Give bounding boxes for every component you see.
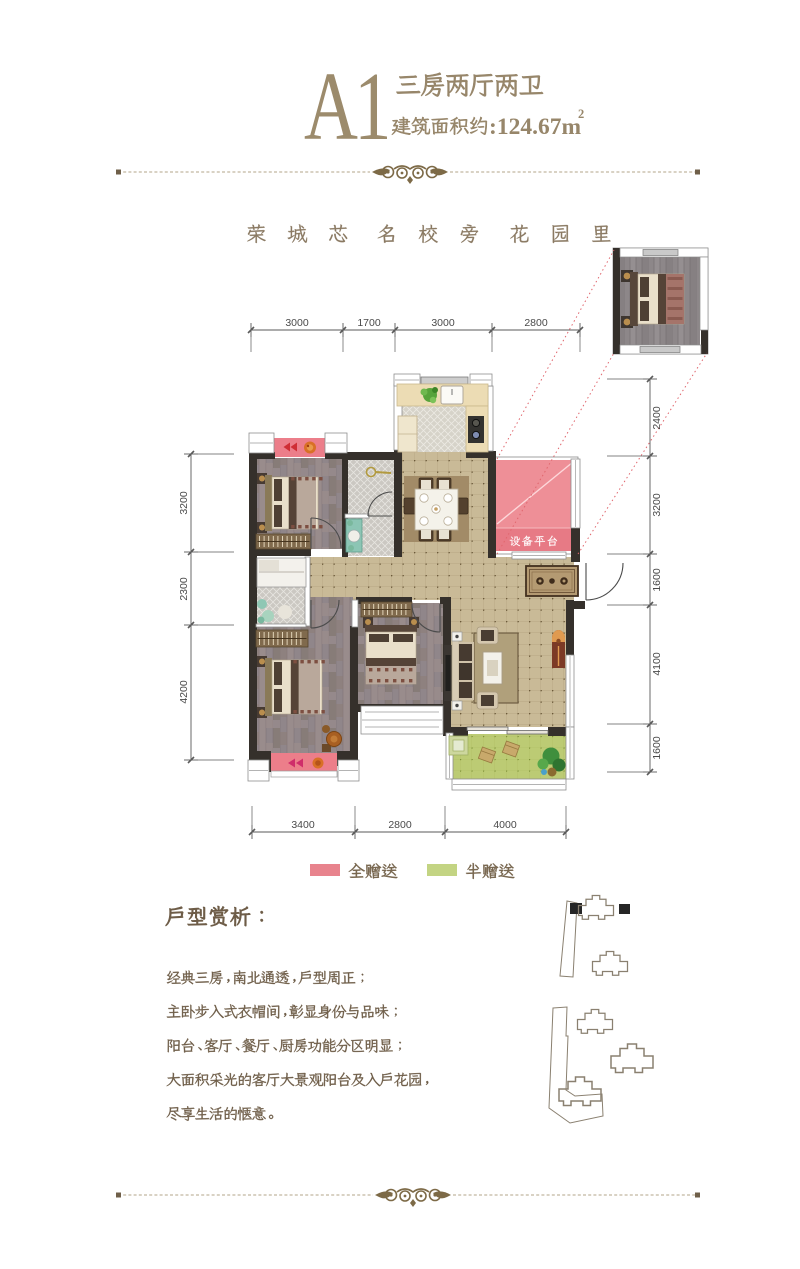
svg-text:1600: 1600 [651, 568, 663, 592]
svg-text:3000: 3000 [431, 317, 455, 329]
svg-text:4000: 4000 [493, 819, 517, 831]
svg-text:3200: 3200 [651, 493, 663, 517]
svg-text:2: 2 [578, 107, 584, 121]
svg-text:2800: 2800 [388, 819, 412, 831]
svg-text:4200: 4200 [178, 680, 190, 704]
svg-text:3000: 3000 [285, 317, 309, 329]
svg-text:1600: 1600 [651, 736, 663, 760]
svg-text:2800: 2800 [524, 317, 548, 329]
svg-text:2400: 2400 [651, 406, 663, 430]
svg-text:4100: 4100 [651, 652, 663, 676]
svg-text:2300: 2300 [178, 577, 190, 601]
svg-text:1700: 1700 [357, 317, 381, 329]
svg-text:3200: 3200 [178, 491, 190, 515]
svg-text:A1: A1 [304, 53, 388, 161]
svg-text:3400: 3400 [291, 819, 315, 831]
svg-text::124.67m: :124.67m [489, 114, 581, 140]
